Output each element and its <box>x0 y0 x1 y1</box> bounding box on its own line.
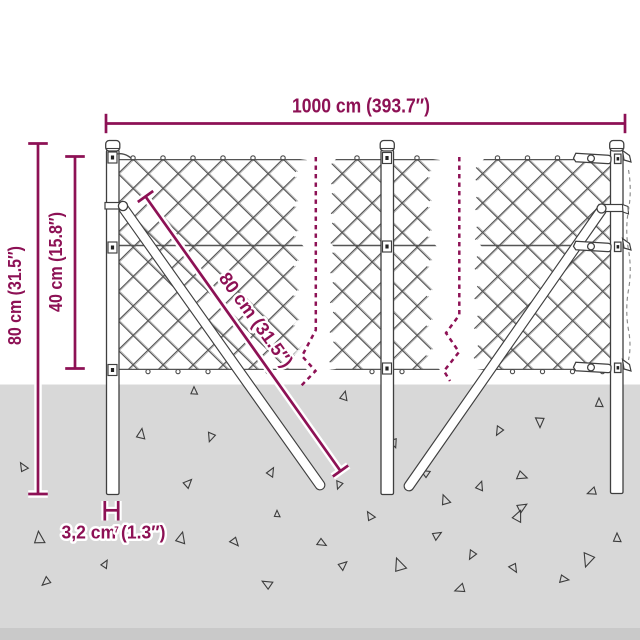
svg-text:1000 cm (393.7″): 1000 cm (393.7″) <box>292 95 430 117</box>
svg-text:7: 7 <box>114 526 119 535</box>
svg-text:80 cm (31.5″): 80 cm (31.5″) <box>4 246 25 345</box>
svg-text:40 cm (15.8″): 40 cm (15.8″) <box>45 212 66 312</box>
